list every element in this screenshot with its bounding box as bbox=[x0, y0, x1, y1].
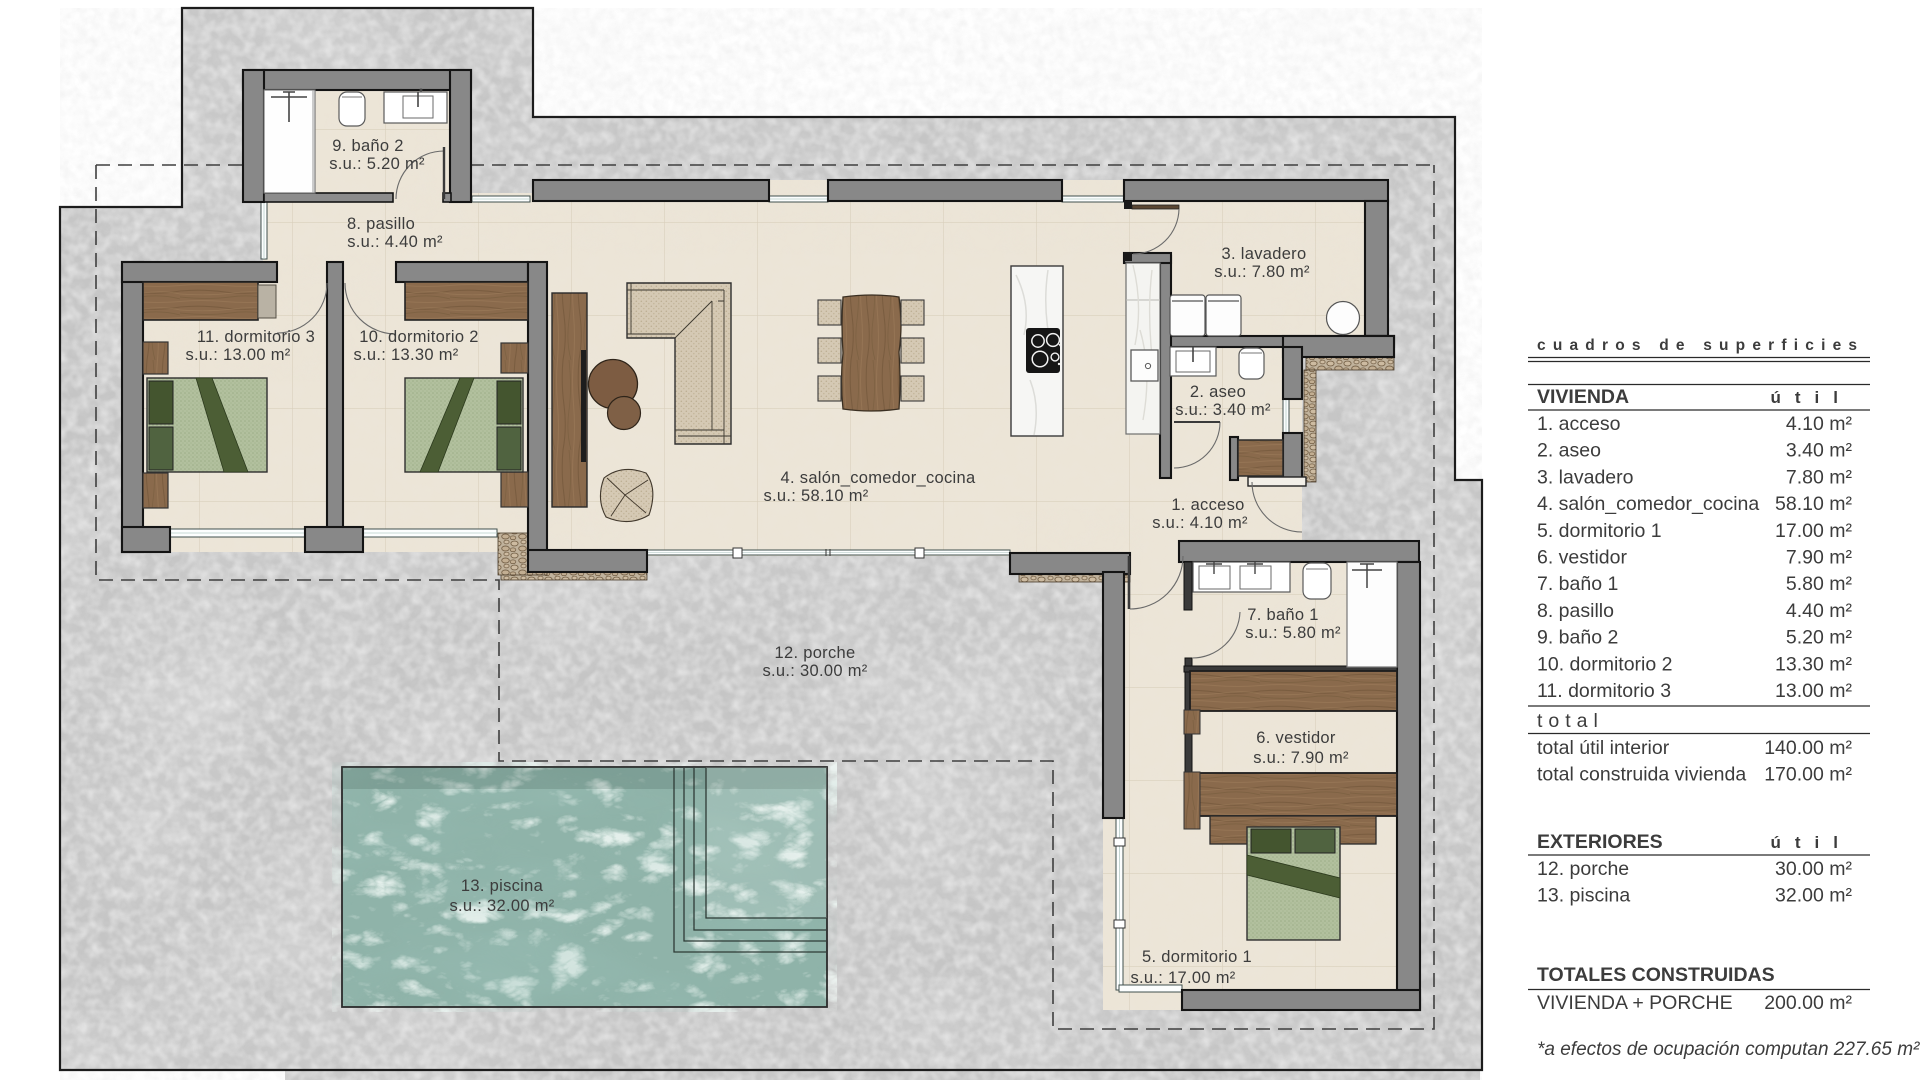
svg-text:útil: útil bbox=[1771, 833, 1853, 852]
svg-text:total: total bbox=[1537, 710, 1604, 732]
svg-text:1. acceso: 1. acceso bbox=[1537, 413, 1621, 435]
svg-text:cuadros de superficies: cuadros de superficies bbox=[1537, 337, 1864, 354]
svg-text:6. vestidor: 6. vestidor bbox=[1256, 729, 1336, 747]
svg-text:EXTERIORES: EXTERIORES bbox=[1537, 831, 1663, 853]
svg-text:12. porche: 12. porche bbox=[1537, 858, 1629, 880]
svg-text:TOTALES CONSTRUIDAS: TOTALES CONSTRUIDAS bbox=[1537, 964, 1775, 986]
svg-text:3. lavadero: 3. lavadero bbox=[1537, 466, 1634, 488]
svg-text:7.90 m²: 7.90 m² bbox=[1786, 547, 1853, 569]
svg-text:4. salón_comedor_cocina: 4. salón_comedor_cocina bbox=[781, 469, 976, 487]
svg-text:170.00 m²: 170.00 m² bbox=[1764, 764, 1852, 786]
svg-text:3. lavadero: 3. lavadero bbox=[1222, 245, 1307, 263]
svg-text:s.u.: 32.00 m²: s.u.: 32.00 m² bbox=[449, 897, 554, 915]
svg-text:s.u.: 3.40 m²: s.u.: 3.40 m² bbox=[1175, 401, 1271, 419]
svg-text:1. acceso: 1. acceso bbox=[1171, 496, 1244, 514]
svg-text:5. dormitorio 1: 5. dormitorio 1 bbox=[1142, 948, 1252, 966]
svg-text:13.00 m²: 13.00 m² bbox=[1775, 680, 1852, 702]
svg-text:32.00 m²: 32.00 m² bbox=[1775, 885, 1852, 907]
svg-text:4.10 m²: 4.10 m² bbox=[1786, 413, 1853, 435]
svg-text:12. porche: 12. porche bbox=[775, 644, 856, 662]
svg-text:s.u.: 5.80 m²: s.u.: 5.80 m² bbox=[1245, 624, 1341, 642]
svg-text:13. piscina: 13. piscina bbox=[461, 877, 544, 895]
svg-text:2. aseo: 2. aseo bbox=[1537, 440, 1601, 462]
svg-text:5.20 m²: 5.20 m² bbox=[1786, 627, 1853, 649]
svg-text:s.u.: 7.80 m²: s.u.: 7.80 m² bbox=[1214, 263, 1310, 281]
svg-text:10. dormitorio 2: 10. dormitorio 2 bbox=[1537, 653, 1672, 675]
svg-text:5. dormitorio 1: 5. dormitorio 1 bbox=[1537, 520, 1662, 542]
svg-text:total útil interior: total útil interior bbox=[1537, 737, 1670, 759]
svg-text:s.u.: 30.00 m²: s.u.: 30.00 m² bbox=[762, 662, 867, 680]
svg-text:58.10 m²: 58.10 m² bbox=[1775, 493, 1852, 515]
svg-text:s.u.: 4.40 m²: s.u.: 4.40 m² bbox=[347, 233, 443, 251]
svg-text:7. baño 1: 7. baño 1 bbox=[1247, 606, 1319, 624]
svg-text:8. pasillo: 8. pasillo bbox=[347, 215, 415, 233]
svg-text:13. piscina: 13. piscina bbox=[1537, 885, 1630, 907]
svg-text:3.40 m²: 3.40 m² bbox=[1786, 440, 1853, 462]
svg-text:útil: útil bbox=[1771, 388, 1853, 407]
svg-text:6. vestidor: 6. vestidor bbox=[1537, 547, 1627, 569]
svg-text:8. pasillo: 8. pasillo bbox=[1537, 600, 1614, 622]
svg-text:200.00 m²: 200.00 m² bbox=[1764, 992, 1852, 1014]
svg-text:s.u.: 17.00 m²: s.u.: 17.00 m² bbox=[1130, 969, 1235, 987]
svg-text:30.00 m²: 30.00 m² bbox=[1775, 858, 1852, 880]
svg-text:13.30 m²: 13.30 m² bbox=[1775, 653, 1852, 675]
svg-text:2. aseo: 2. aseo bbox=[1190, 383, 1246, 401]
svg-text:4. salón_comedor_cocina: 4. salón_comedor_cocina bbox=[1537, 493, 1759, 515]
svg-text:17.00 m²: 17.00 m² bbox=[1775, 520, 1852, 542]
svg-text:4.40 m²: 4.40 m² bbox=[1786, 600, 1853, 622]
svg-text:*a efectos de ocupación comput: *a efectos de ocupación computan 227.65 … bbox=[1537, 1039, 1920, 1060]
svg-text:10. dormitorio 2: 10. dormitorio 2 bbox=[359, 328, 478, 346]
svg-text:11. dormitorio 3: 11. dormitorio 3 bbox=[1537, 680, 1671, 702]
svg-text:total construida vivienda: total construida vivienda bbox=[1537, 764, 1746, 786]
svg-text:s.u.: 5.20 m²: s.u.: 5.20 m² bbox=[329, 155, 425, 173]
svg-text:9. baño 2: 9. baño 2 bbox=[1537, 627, 1618, 649]
svg-text:s.u.: 7.90 m²: s.u.: 7.90 m² bbox=[1253, 749, 1349, 767]
svg-text:s.u.: 13.00 m²: s.u.: 13.00 m² bbox=[185, 346, 290, 364]
svg-text:140.00 m²: 140.00 m² bbox=[1764, 737, 1852, 759]
svg-text:7.80 m²: 7.80 m² bbox=[1786, 466, 1853, 488]
svg-text:VIVIENDA: VIVIENDA bbox=[1537, 386, 1629, 408]
svg-text:s.u.: 13.30 m²: s.u.: 13.30 m² bbox=[353, 346, 458, 364]
svg-text:s.u.: 58.10 m²: s.u.: 58.10 m² bbox=[763, 487, 868, 505]
svg-text:9. baño 2: 9. baño 2 bbox=[332, 137, 404, 155]
svg-text:11. dormitorio 3: 11. dormitorio 3 bbox=[197, 328, 315, 346]
svg-text:s.u.: 4.10 m²: s.u.: 4.10 m² bbox=[1152, 514, 1248, 532]
svg-text:VIVIENDA + PORCHE: VIVIENDA + PORCHE bbox=[1537, 992, 1733, 1014]
svg-text:5.80 m²: 5.80 m² bbox=[1786, 573, 1853, 595]
svg-text:7. baño 1: 7. baño 1 bbox=[1537, 573, 1618, 595]
